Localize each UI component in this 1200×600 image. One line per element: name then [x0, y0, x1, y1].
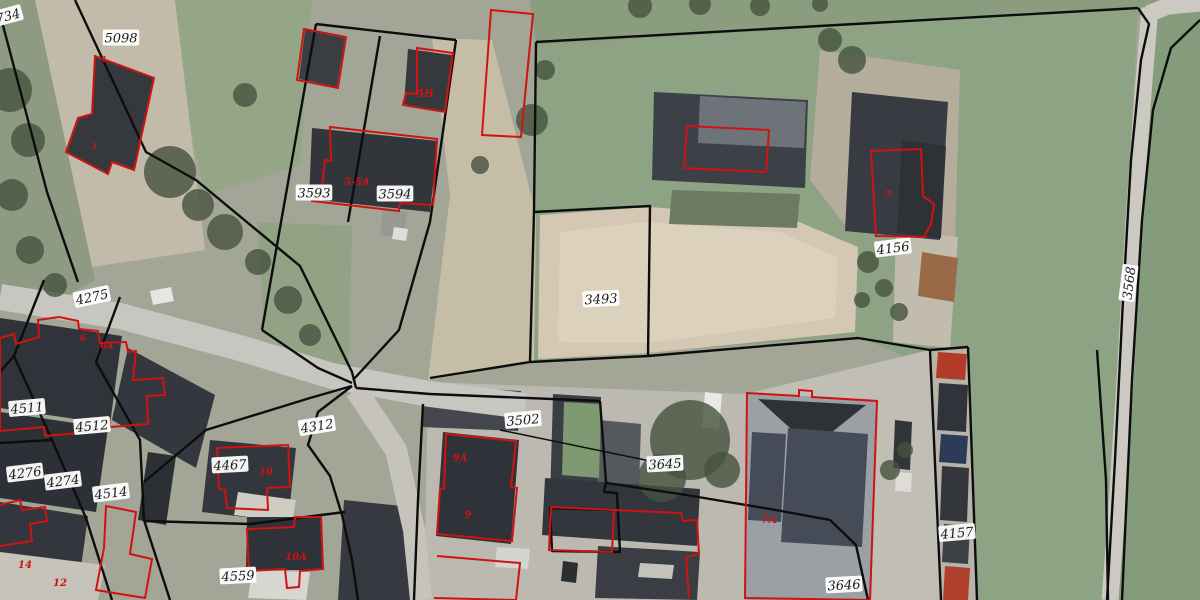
- house-number-10: 10: [259, 467, 273, 478]
- house-number-7: 7: [884, 189, 892, 202]
- tree-25: [818, 28, 842, 52]
- tree-3: [144, 146, 196, 198]
- tree-8: [299, 324, 321, 346]
- region-pen-green: [669, 190, 800, 228]
- house-number-6A: 6A: [100, 342, 113, 352]
- tree-7: [274, 286, 302, 314]
- parcel-label-3502: 3502: [504, 410, 542, 430]
- tree-21: [875, 279, 893, 297]
- region-bldg-3645-green: [562, 402, 601, 478]
- tree-24: [838, 46, 866, 74]
- region-truck-dark1: [937, 383, 968, 432]
- house-number-7A: 7A: [761, 513, 778, 526]
- house-number-10A: 10A: [285, 552, 307, 563]
- tree-9: [233, 83, 257, 107]
- parcel-number-text: 5098: [104, 32, 137, 47]
- tree-12: [471, 156, 489, 174]
- tree-23: [854, 292, 870, 308]
- house-number-1: 1: [101, 54, 107, 64]
- parcel-label-4467: 4467: [211, 456, 248, 475]
- parcel-number-text: 4157: [939, 525, 975, 543]
- region-car-white-2: [392, 227, 408, 241]
- region-bldg-9a: [436, 432, 519, 544]
- tree-22: [890, 303, 908, 321]
- parcel-label-3493: 3493: [582, 290, 619, 309]
- parcel-label-4511: 4511: [8, 398, 46, 418]
- region-wood-pile: [918, 252, 958, 302]
- parcel-number-text: 4559: [220, 569, 255, 586]
- tree-29: [897, 442, 913, 458]
- house-number-5B: 5B: [417, 87, 434, 100]
- map-viewport[interactable]: 7345098359335943493415635684275431245114…: [0, 0, 1200, 600]
- house-number-5-5A: 5-5A: [344, 177, 370, 188]
- parcel-label-3594: 3594: [377, 186, 414, 203]
- house-number-6: 6: [80, 334, 87, 344]
- parcel-label-3646: 3646: [825, 576, 862, 595]
- region-truck-dark2: [940, 466, 969, 522]
- parcel-number-text: 4512: [74, 418, 109, 436]
- tree-4: [182, 189, 214, 221]
- tree-26: [16, 236, 44, 264]
- parcel-number-text: 3502: [506, 412, 540, 430]
- parcel-number-text: 3493: [584, 292, 618, 309]
- tree-28: [880, 460, 900, 480]
- tree-5: [207, 214, 243, 250]
- house-number-9: 9: [465, 510, 472, 521]
- tree-11: [535, 60, 555, 80]
- tree-19: [704, 452, 740, 488]
- parcel-number-text: 4511: [9, 400, 44, 418]
- parcel-label-3645: 3645: [646, 455, 683, 474]
- region-bldg-5b: [404, 49, 452, 112]
- region-truck-blue: [939, 434, 968, 464]
- parcel-label-3593: 3593: [296, 185, 333, 202]
- parcel-number-text: 3594: [378, 188, 411, 203]
- tree-1: [11, 123, 45, 157]
- region-truck-orange: [943, 566, 970, 600]
- parcel-number-text: 3593: [297, 187, 330, 202]
- parcel-number-text: 3646: [827, 578, 861, 595]
- parcel-label-5098: 5098: [103, 30, 140, 47]
- tree-27: [43, 273, 67, 297]
- house-number-12: 12: [53, 578, 67, 589]
- aerial-cadastral-map: 7345098359335943493415635684275431245114…: [0, 0, 1200, 600]
- region-white-roof2: [495, 547, 530, 569]
- parcel-label-4157: 4157: [938, 523, 976, 543]
- tree-6: [245, 249, 271, 275]
- parcel-label-4559: 4559: [219, 567, 256, 586]
- region-stable-roof-light: [698, 96, 806, 148]
- region-white-roof: [638, 563, 674, 579]
- parcel-number-text: 3645: [648, 457, 682, 474]
- house-number-3: 3: [91, 141, 97, 151]
- parcel-number-text: 4467: [212, 458, 248, 475]
- house-number-9A: 9A: [453, 453, 468, 464]
- region-solar-right: [781, 428, 868, 547]
- house-number-14: 14: [18, 560, 32, 571]
- parcel-label-4512: 4512: [73, 416, 111, 436]
- region-car-dark-court: [561, 561, 578, 583]
- region-truck-red: [936, 352, 967, 380]
